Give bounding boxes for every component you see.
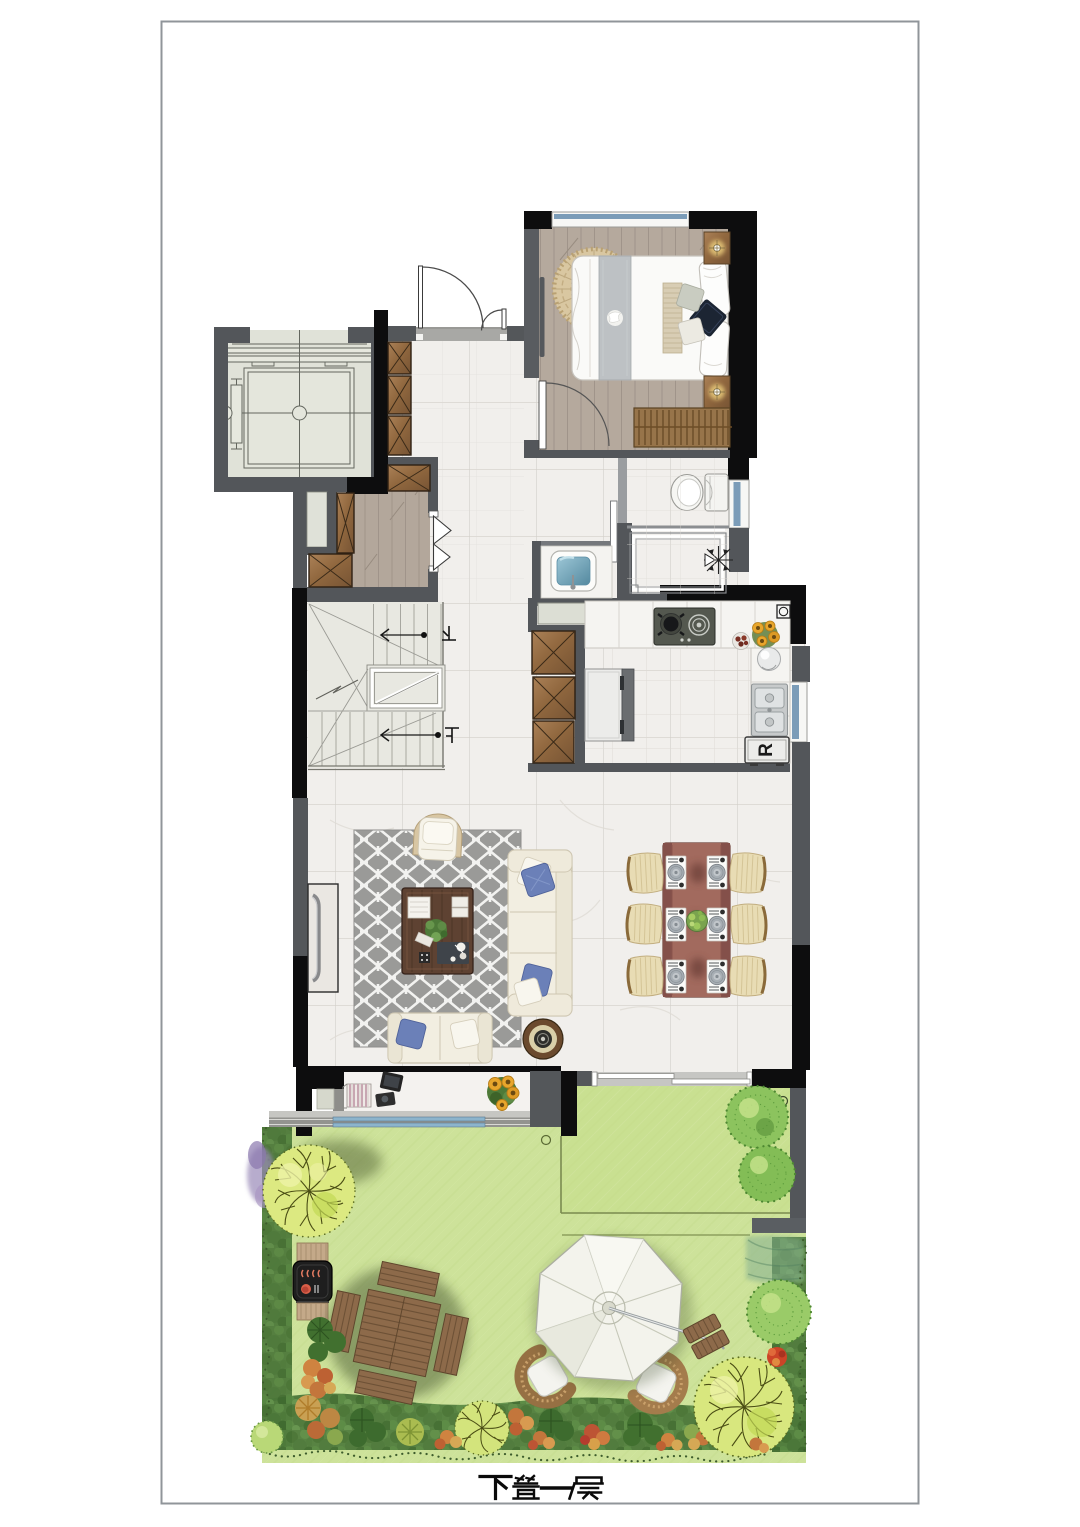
svg-text:R: R [756, 743, 777, 757]
